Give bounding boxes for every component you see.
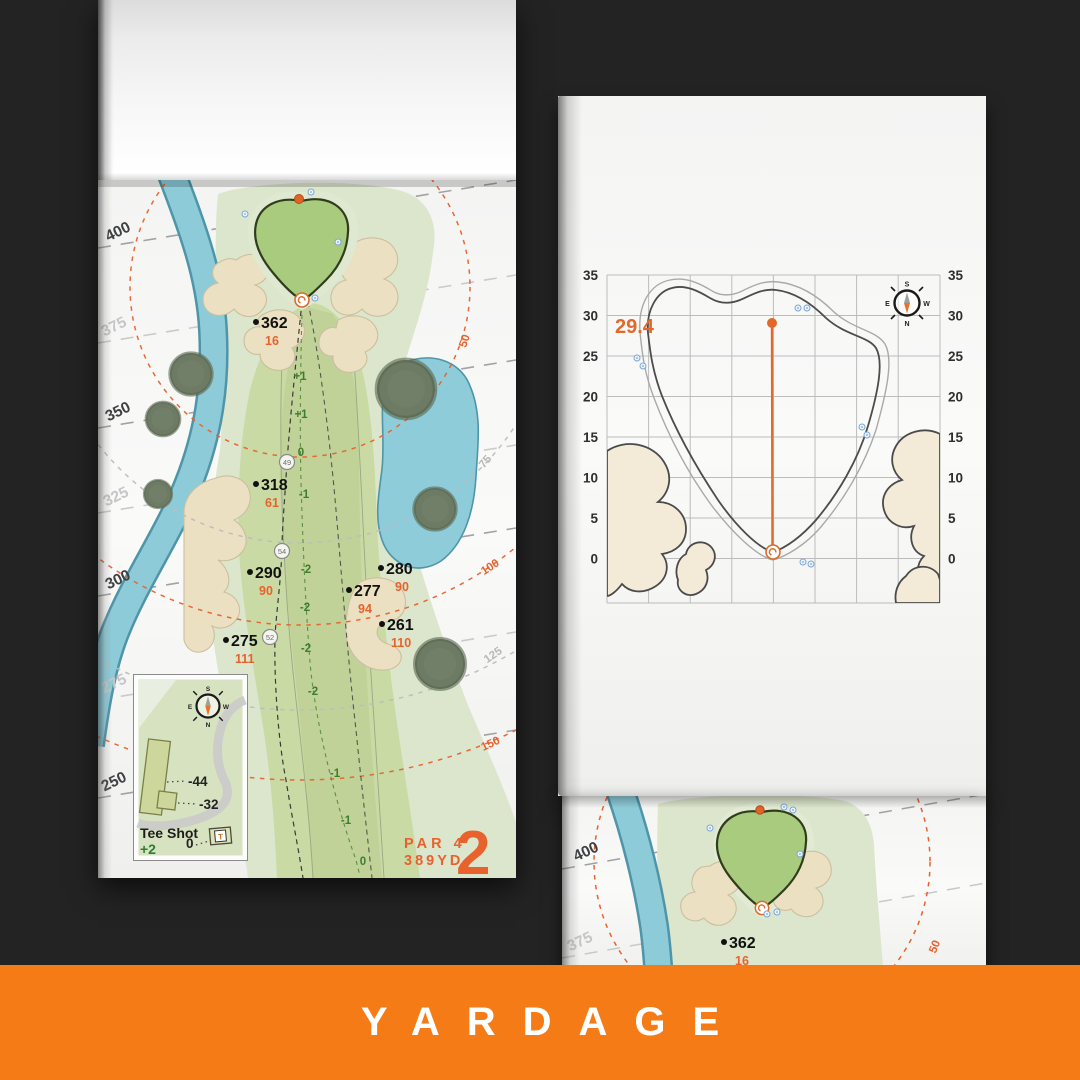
page-overlap-shadow xyxy=(562,796,986,808)
svg-text:261: 261 xyxy=(387,617,414,634)
tee-shot-elevation: +2 xyxy=(140,841,156,857)
svg-text:-1: -1 xyxy=(330,768,341,780)
svg-text:35: 35 xyxy=(583,268,599,283)
tee-inset-title: Tee Shot xyxy=(140,825,198,841)
svg-text:111: 111 xyxy=(235,652,255,666)
svg-text:15: 15 xyxy=(583,430,599,445)
pin-icon xyxy=(766,545,780,559)
svg-text:0: 0 xyxy=(360,856,366,868)
hole-map-page: 49 54 52 362 16 318 61 290 90 xyxy=(98,0,516,878)
sprinkler-icon xyxy=(312,295,318,301)
svg-text:90: 90 xyxy=(259,584,273,598)
hole-number: 2 xyxy=(456,819,490,878)
tee-offset: -44 xyxy=(188,774,208,789)
svg-text:110: 110 xyxy=(391,636,411,650)
svg-text:290: 290 xyxy=(255,565,282,582)
svg-text:362: 362 xyxy=(261,315,288,332)
pin-icon xyxy=(295,293,309,307)
svg-text:20: 20 xyxy=(583,390,598,405)
svg-text:10: 10 xyxy=(583,471,598,486)
yardage-book-promo: S N W E xyxy=(0,0,1080,1080)
folded-cover-page[interactable] xyxy=(98,0,516,180)
forward-tee-box xyxy=(157,791,177,810)
svg-text:280: 280 xyxy=(386,561,413,578)
svg-text:25: 25 xyxy=(583,349,599,364)
svg-text:35: 35 xyxy=(948,268,964,283)
sprinkler-icon xyxy=(242,211,248,217)
banner-label: YARDAGE xyxy=(334,1000,746,1045)
next-hole-page[interactable]: 362 16 400 375 50 xyxy=(562,796,986,980)
svg-text:94: 94 xyxy=(358,602,372,616)
page-curl-edge xyxy=(562,796,580,980)
svg-text:5: 5 xyxy=(590,511,598,526)
svg-text:277: 277 xyxy=(354,583,381,600)
tee-marker-label: T xyxy=(218,832,224,841)
hole-map: 49 54 52 362 16 318 61 290 90 xyxy=(98,180,516,878)
svg-text:61: 61 xyxy=(265,496,279,510)
yardage-banner: YARDAGE xyxy=(0,965,1080,1080)
svg-text:-2: -2 xyxy=(300,602,310,614)
svg-text:30: 30 xyxy=(948,309,963,324)
sprinkler-icon xyxy=(335,239,341,245)
green-detail-page[interactable]: 29.4 35 30 25 20 15 10 5 0 35 xyxy=(558,96,986,796)
fold-crease-shadow xyxy=(98,180,516,187)
tee-shot-inset: -44 -32 0 T Tee Shot +2 xyxy=(134,675,248,861)
svg-text:30: 30 xyxy=(583,309,598,324)
svg-text:275: 275 xyxy=(231,633,258,650)
svg-text:90: 90 xyxy=(395,580,409,594)
pin-position-dot xyxy=(295,195,304,204)
page-curl-edge xyxy=(558,96,582,796)
svg-text:+1: +1 xyxy=(294,409,308,421)
svg-text:362: 362 xyxy=(729,935,756,952)
svg-text:+1: +1 xyxy=(293,371,307,383)
sprinkler-icon xyxy=(308,189,314,195)
svg-text:-2: -2 xyxy=(308,686,318,698)
svg-text:15: 15 xyxy=(948,430,964,445)
svg-text:10: 10 xyxy=(948,471,963,486)
hole-yardage-label: 389YD xyxy=(404,853,463,869)
svg-text:-2: -2 xyxy=(301,564,311,576)
svg-text:-1: -1 xyxy=(299,489,310,501)
svg-text:0: 0 xyxy=(298,447,304,459)
svg-text:20: 20 xyxy=(948,390,963,405)
svg-text:-2: -2 xyxy=(301,643,311,655)
waypoint-label: 52 xyxy=(266,633,274,642)
waypoint-label: 49 xyxy=(283,458,291,467)
tee-offset: -32 xyxy=(199,797,219,812)
green-depth-value: 29.4 xyxy=(615,316,655,338)
waypoint-label: 54 xyxy=(278,547,286,556)
svg-text:-1: -1 xyxy=(341,815,352,827)
svg-text:318: 318 xyxy=(261,477,288,494)
svg-text:16: 16 xyxy=(265,334,279,348)
svg-text:25: 25 xyxy=(948,349,964,364)
svg-text:5: 5 xyxy=(948,511,956,526)
svg-text:0: 0 xyxy=(948,552,956,567)
svg-text:0: 0 xyxy=(590,552,598,567)
